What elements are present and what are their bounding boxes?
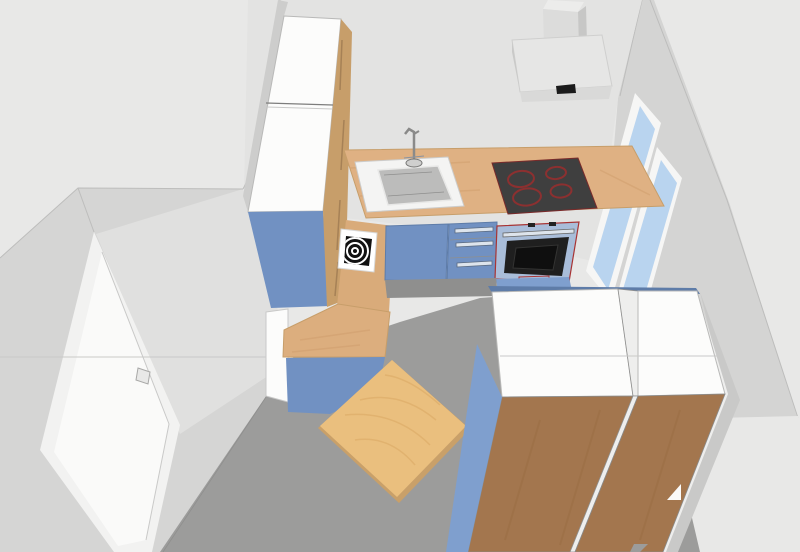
cooktop-glass bbox=[492, 158, 597, 214]
oven-knob-left bbox=[528, 223, 535, 227]
base-cabinet-door[interactable] bbox=[385, 224, 448, 282]
unit-left-top bbox=[492, 289, 633, 397]
drawer-unit[interactable] bbox=[447, 222, 497, 282]
oven-door-window bbox=[513, 245, 558, 270]
spiral-target-icon bbox=[338, 229, 377, 272]
base-plinth-shadow bbox=[385, 278, 498, 298]
kitchen-3d-preview bbox=[0, 0, 800, 552]
oven[interactable] bbox=[495, 222, 579, 293]
sink-basin bbox=[378, 166, 452, 205]
cooktop[interactable] bbox=[492, 158, 597, 214]
oven-knob-right bbox=[549, 222, 556, 226]
hood-top bbox=[512, 35, 612, 92]
faucet-base bbox=[406, 159, 422, 167]
